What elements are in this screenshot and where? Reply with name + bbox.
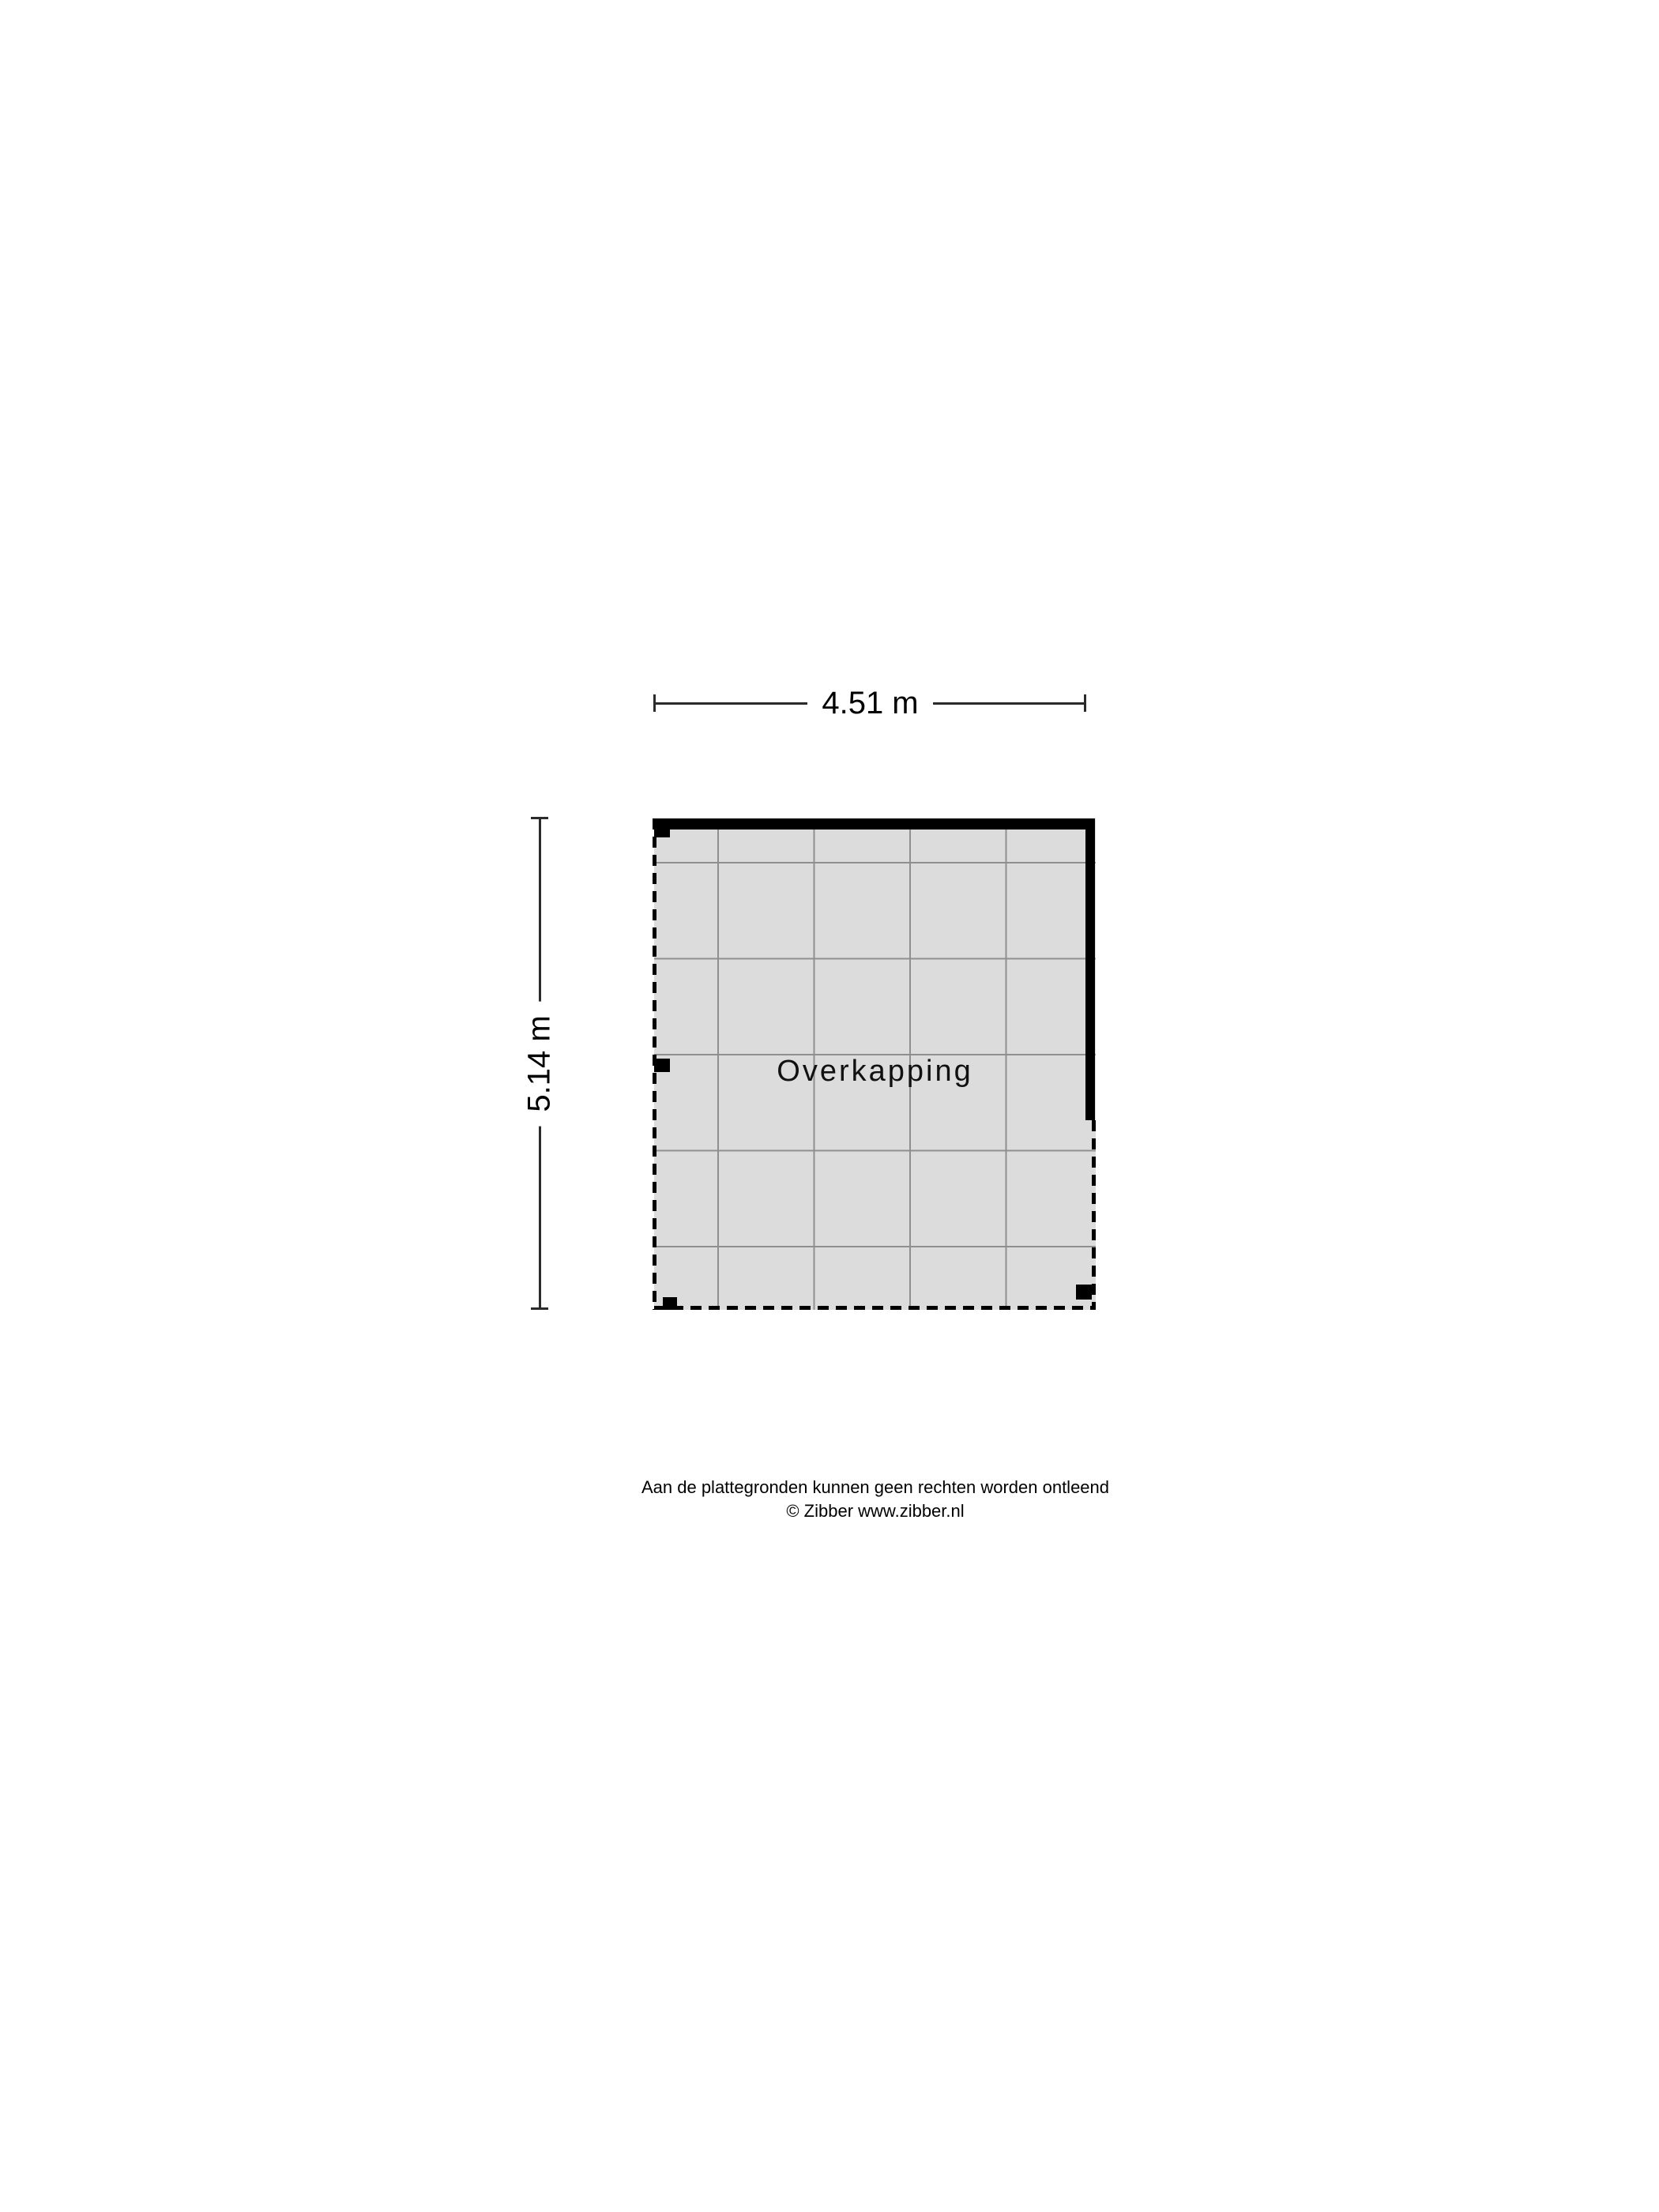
height-dimension-endcap-bottom [531, 1307, 548, 1310]
width-dimension-label: 4.51 m [654, 684, 1086, 722]
footer: Aan de plattegronden kunnen geen rechten… [591, 1476, 1160, 1523]
wall-right [1085, 818, 1095, 1120]
corner-post-top-left [654, 818, 670, 837]
post-mid-left [654, 1059, 670, 1072]
footer-disclaimer: Aan de plattegronden kunnen geen rechten… [591, 1476, 1160, 1499]
floorplan-page: 4.51 m 5.14 m Overkapping Aan de platteg… [0, 0, 1659, 2212]
room-label: Overkapping [654, 1054, 1096, 1089]
dashed-edge-right-lower [1092, 1120, 1096, 1307]
dashed-edge-bottom [654, 1306, 1096, 1310]
footer-copyright: © Zibber www.zibber.nl [591, 1499, 1160, 1523]
wall-top [654, 818, 1095, 829]
height-dimension-label: 5.14 m [421, 945, 658, 1182]
height-dimension-endcap-top [531, 817, 548, 819]
corner-post-bottom-left [663, 1297, 677, 1310]
corner-post-bottom-right [1076, 1285, 1092, 1300]
